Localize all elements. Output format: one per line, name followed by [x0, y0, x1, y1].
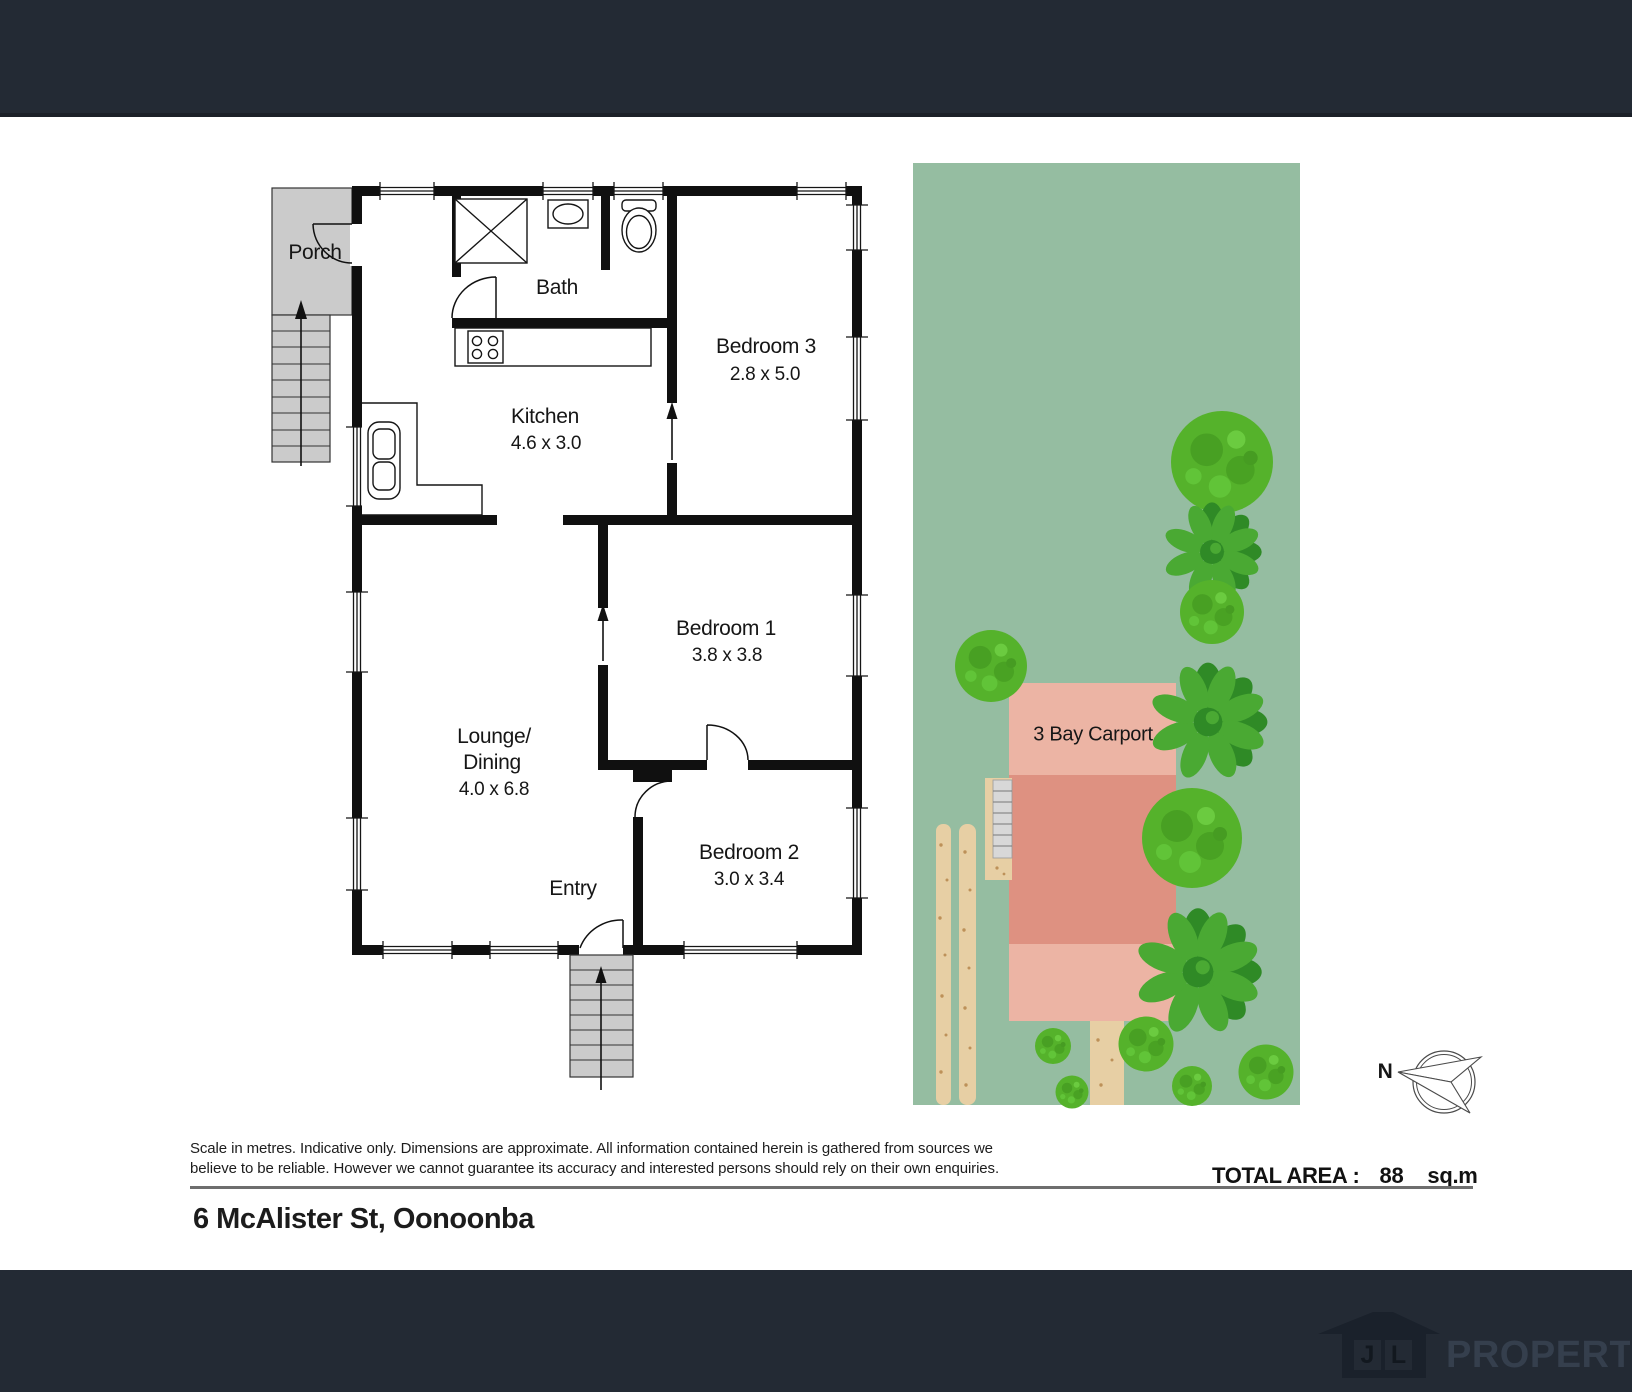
disclaimer-text: Scale in metres. Indicative only. Dimens… — [190, 1139, 999, 1179]
entry-label: Entry — [549, 877, 597, 901]
porch-label: Porch — [288, 241, 341, 265]
bedroom2-dims: 3.0 x 3.4 — [714, 869, 784, 891]
floor-plan — [272, 182, 868, 1090]
site-plan — [913, 163, 1300, 1109]
bathroom-fixtures — [455, 199, 656, 263]
walls — [352, 186, 862, 955]
property-address: 6 McAlister St, Oonoonba — [193, 1203, 534, 1236]
bedroom1-label: Bedroom 1 — [676, 617, 776, 641]
disclaimer-line1: Scale in metres. Indicative only. Dimens… — [190, 1140, 993, 1157]
jl-property-logo: J L PROPERTY — [1318, 1306, 1630, 1389]
lounge-label-line1: Lounge/ — [457, 725, 531, 749]
porch-area — [272, 188, 352, 466]
bedroom3-dims: 2.8 x 5.0 — [730, 364, 800, 386]
lounge-dims: 4.0 x 6.8 — [459, 779, 529, 801]
kitchen-label: Kitchen — [511, 405, 579, 429]
compass-icon — [1398, 1051, 1481, 1113]
compass-north-label: N — [1378, 1060, 1393, 1084]
logo-letter-j: J — [1361, 1341, 1375, 1369]
stove — [468, 331, 503, 363]
divider-line — [190, 1186, 1473, 1189]
side-steps — [985, 778, 1012, 880]
rear-path — [1090, 1021, 1124, 1105]
door-arrows — [598, 402, 678, 661]
bedroom2-label: Bedroom 2 — [699, 841, 799, 865]
disclaimer-line2: believe to be reliable. However we canno… — [190, 1160, 999, 1177]
entry-stairs — [570, 955, 633, 1090]
logo-name: PROPERTY — [1446, 1334, 1630, 1376]
kitchen-fittings — [362, 328, 651, 515]
bedroom3-label: Bedroom 3 — [716, 335, 816, 359]
lounge-label-line2: Dining — [463, 751, 521, 775]
bedroom1-dims: 3.8 x 3.8 — [692, 645, 762, 667]
carport-label: 3 Bay Carport — [1033, 724, 1153, 747]
bath-label: Bath — [536, 276, 578, 300]
house-icon: J L PROPERTY — [1318, 1306, 1630, 1384]
kitchen-dims: 4.6 x 3.0 — [511, 433, 581, 455]
logo-letter-l: L — [1391, 1341, 1406, 1369]
